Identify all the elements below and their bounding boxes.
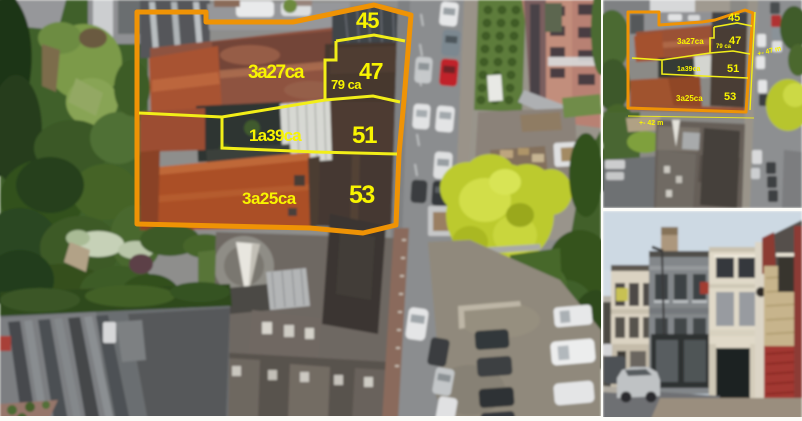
svg-text:47: 47 [359,58,383,84]
svg-text:1a39ca: 1a39ca [677,66,700,73]
svg-text:53: 53 [724,91,736,103]
svg-text:1a39ca: 1a39ca [249,126,302,145]
svg-text:3a25ca: 3a25ca [242,189,297,208]
svg-text:45: 45 [728,12,740,24]
svg-text:+- 42 m: +- 42 m [639,120,663,127]
svg-text:79 ca: 79 ca [716,44,732,50]
svg-text:79 ca: 79 ca [331,77,362,92]
svg-text:45: 45 [356,8,379,33]
svg-text:3a27ca: 3a27ca [677,37,704,46]
svg-text:3a27ca: 3a27ca [248,62,305,83]
svg-text:51: 51 [352,122,377,149]
svg-text:51: 51 [727,63,739,75]
svg-text:53: 53 [349,181,374,209]
svg-text:3a25ca: 3a25ca [676,94,703,103]
